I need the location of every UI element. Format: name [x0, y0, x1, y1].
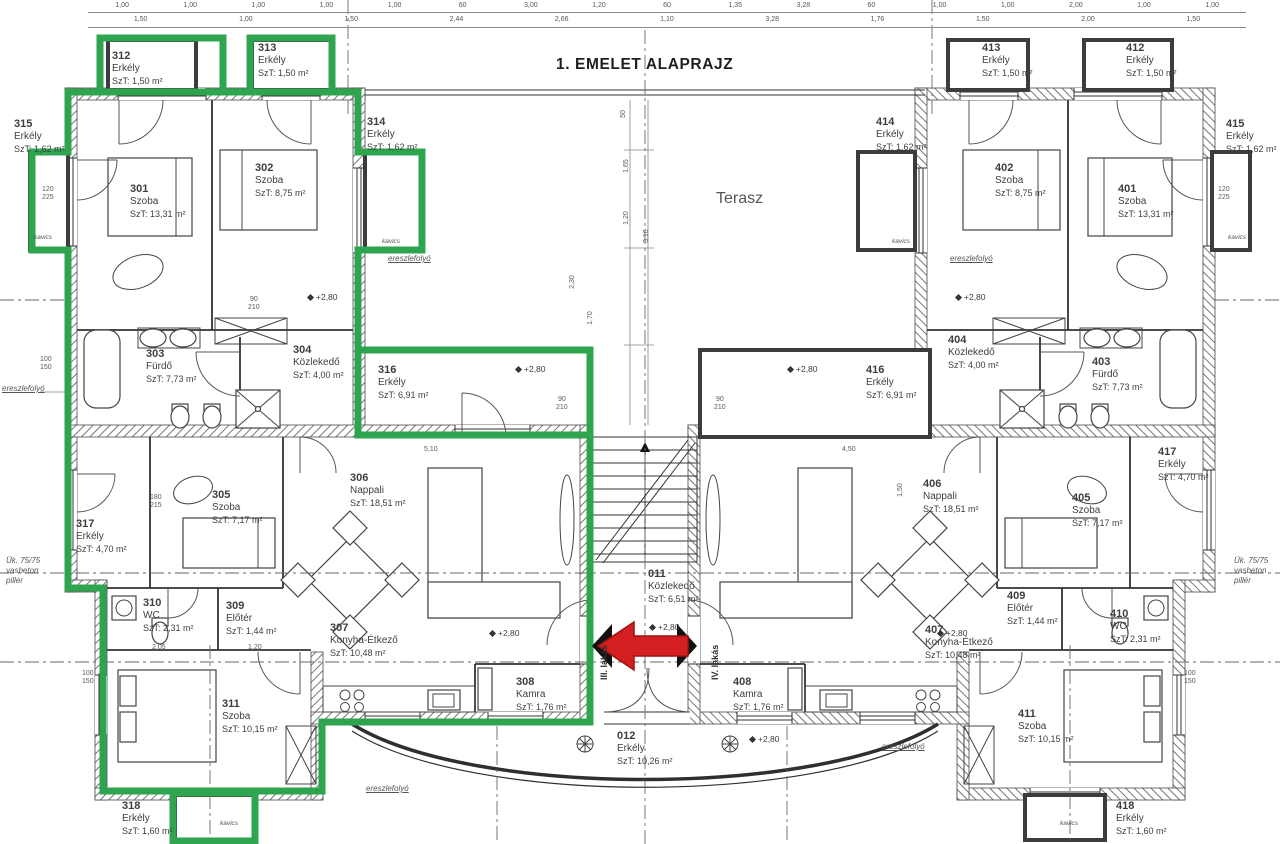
room-label: 415 Erkély SzT: 1,62 m²: [1226, 118, 1277, 155]
room-number: 311: [222, 698, 278, 711]
room-area: SzT: 1,50 m²: [258, 68, 309, 79]
room-name: WC: [143, 610, 194, 622]
room-name: Erkély: [1226, 131, 1277, 143]
room-number: 308: [516, 676, 567, 689]
dimension-value: 60: [633, 2, 701, 9]
room-number: 306: [350, 472, 406, 485]
room-label: 305 Szoba SzT: 7,17 m²: [212, 489, 263, 526]
room-number: 403: [1092, 356, 1143, 369]
annotation: Ük. 75/75 vasbeton pillér: [6, 556, 40, 586]
room-label: 313 Erkély SzT: 1,50 m²: [258, 42, 309, 79]
room-number: 317: [76, 518, 127, 531]
dimension-mark: 50: [620, 110, 628, 118]
room-name: Szoba: [1072, 505, 1123, 517]
dimension-value: 1,20: [565, 2, 633, 9]
dimension-value: 1,00: [974, 2, 1042, 9]
room-area: SzT: 4,70 m²: [76, 544, 127, 555]
room-name: Kamra: [516, 689, 567, 701]
room-number: 316: [378, 364, 429, 377]
room-number: 310: [143, 597, 194, 610]
dimension-value: 1,00: [224, 2, 292, 9]
room-area: SzT: 1,62 m²: [1226, 144, 1277, 155]
dimension-mark: 1,70: [587, 311, 595, 325]
room-area: SzT: 1,44 m²: [226, 626, 277, 637]
annotation: kavics: [1228, 234, 1246, 242]
dimension-mark: 5,10: [424, 446, 438, 454]
room-area: SzT: 6,51 m²: [648, 594, 699, 605]
room-label: 314 Erkély SzT: 1,62 m²: [367, 116, 418, 153]
room-area: SzT: 13,31 m²: [1118, 209, 1174, 220]
room-label: 316 Erkély SzT: 6,91 m²: [378, 364, 429, 401]
room-name: Szoba: [222, 711, 278, 723]
room-name: Előtér: [226, 613, 277, 625]
room-label: 403 Fürdő SzT: 7,73 m²: [1092, 356, 1143, 393]
dimension-value: 1,00: [361, 2, 429, 9]
dimension-value: 1,00: [1110, 2, 1178, 9]
room-area: SzT: 10,48 m²: [330, 648, 398, 659]
room-area: SzT: 7,17 m²: [1072, 518, 1123, 529]
dimension-value: 2,44: [404, 16, 509, 23]
room-name: Erkély: [1158, 459, 1209, 471]
room-label: 418 Erkély SzT: 1,60 m²: [1116, 800, 1167, 837]
room-number: 402: [995, 162, 1046, 175]
room-area: SzT: 7,17 m²: [212, 515, 263, 526]
room-area: SzT: 4,00 m²: [948, 360, 999, 371]
room-area: SzT: 4,70 m²: [1158, 472, 1209, 483]
room-number: 307: [330, 622, 398, 635]
dimension-value: 1,10: [614, 16, 719, 23]
room-label: 315 Erkély SzT: 1,62 m²: [14, 118, 65, 155]
room-name: Közlekedő: [948, 347, 999, 359]
room-area: SzT: 1,50 m²: [982, 68, 1033, 79]
room-label: 308 Kamra SzT: 1,76 m²: [516, 676, 567, 713]
annotation: kavics: [34, 234, 52, 242]
annotation: ereszlefolyó: [2, 384, 45, 394]
room-label: 409 Előtér SzT: 1,44 m²: [1007, 590, 1058, 627]
room-label: 412 Erkély SzT: 1,50 m²: [1126, 42, 1177, 79]
room-label: 303 Fürdő SzT: 7,73 m²: [146, 348, 197, 385]
room-label: 405 Szoba SzT: 7,17 m²: [1072, 492, 1123, 529]
apartment-unit-geometry: [30, 0, 592, 844]
room-label: 011 Közlekedő SzT: 6,51 m²: [648, 568, 699, 605]
annotation: kavics: [382, 238, 400, 246]
room-area: SzT: 1,62 m²: [367, 142, 418, 153]
room-area: SzT: 10,48 m²: [925, 650, 993, 661]
room-number: 313: [258, 42, 309, 55]
room-label: 404 Közlekedő SzT: 4,00 m²: [948, 334, 999, 371]
room-number: 012: [617, 730, 673, 743]
room-number: 409: [1007, 590, 1058, 603]
room-area: SzT: 2,31 m²: [1110, 634, 1161, 645]
room-area: SzT: 1,60 m²: [1116, 826, 1167, 837]
dimension-value: 1,50: [299, 16, 404, 23]
dimension-mark: 2,05: [152, 644, 166, 652]
room-area: SzT: 6,91 m²: [378, 390, 429, 401]
elevation-marker: +2,80: [490, 628, 520, 638]
room-name: Erkély: [378, 377, 429, 389]
dimension-row-1: 1,001,001,001,001,00603,001,20601,353,28…: [88, 2, 1246, 9]
dimension-value: 1,00: [1178, 2, 1246, 9]
dimension-value: 1,00: [292, 2, 360, 9]
room-name: Erkély: [982, 55, 1033, 67]
dimension-mark: 100 150: [82, 670, 94, 686]
dimension-mark: 1,65: [623, 159, 631, 173]
dimension-value: 3,28: [769, 2, 837, 9]
room-area: SzT: 10,15 m²: [222, 724, 278, 735]
room-name: Erkély: [122, 813, 173, 825]
room-area: SzT: 1,76 m²: [516, 702, 567, 713]
room-name: Erkély: [14, 131, 65, 143]
unit-right-label: IV. lakás: [710, 645, 720, 680]
room-number: 404: [948, 334, 999, 347]
room-name: Erkély: [76, 531, 127, 543]
room-area: SzT: 2,31 m²: [143, 623, 194, 634]
room-label: 302 Szoba SzT: 8,75 m²: [255, 162, 306, 199]
room-number: 314: [367, 116, 418, 129]
room-area: SzT: 1,76 m²: [733, 702, 784, 713]
dimension-mark: 100 150: [1184, 670, 1196, 686]
floor-plan: .wall{fill:url(#hatch);stroke:#4a4a4a;st…: [0, 0, 1280, 844]
annotation: kavics: [892, 238, 910, 246]
room-number: 401: [1118, 183, 1174, 196]
room-name: Fürdő: [146, 361, 197, 373]
dimension-value: 1,50: [88, 16, 193, 23]
dimension-value: 1,35: [701, 2, 769, 9]
room-number: 416: [866, 364, 917, 377]
annotation: ereszlefolyó: [388, 254, 431, 264]
room-number: 411: [1018, 708, 1074, 721]
room-area: SzT: 8,75 m²: [255, 188, 306, 199]
room-area: SzT: 1,62 m²: [14, 144, 65, 155]
room-label: 402 Szoba SzT: 8,75 m²: [995, 162, 1046, 199]
room-area: SzT: 1,60 m²: [122, 826, 173, 837]
room-number: 406: [923, 478, 979, 491]
room-label: 304 Közlekedő SzT: 4,00 m²: [293, 344, 344, 381]
room-name: Közlekedő: [648, 581, 699, 593]
dimension-mark: 90 210: [714, 396, 726, 412]
annotation: ereszlefolyó: [366, 784, 409, 794]
room-number: 312: [112, 50, 163, 63]
room-label: 408 Kamra SzT: 1,76 m²: [733, 676, 784, 713]
dimension-mark: 120 225: [42, 186, 54, 202]
room-number: 418: [1116, 800, 1167, 813]
annotation: ereszlefolyó: [950, 254, 993, 264]
room-name: Fürdő: [1092, 369, 1143, 381]
room-name: Kamra: [733, 689, 784, 701]
dimension-value: 1,00: [88, 2, 156, 9]
room-number: 303: [146, 348, 197, 361]
room-number: 315: [14, 118, 65, 131]
room-number: 410: [1110, 608, 1161, 621]
dimension-mark: 120 225: [1218, 186, 1230, 202]
room-name: Erkély: [1116, 813, 1167, 825]
room-number: 304: [293, 344, 344, 357]
room-name: Nappali: [923, 491, 979, 503]
elevation-marker: +2,80: [308, 292, 338, 302]
elevation-marker: +2,80: [516, 364, 546, 374]
room-name: Erkély: [866, 377, 917, 389]
room-area: SzT: 6,91 m²: [866, 390, 917, 401]
dimension-mark: 3,10: [643, 229, 651, 243]
room-area: SzT: 4,00 m²: [293, 370, 344, 381]
room-name: Nappali: [350, 485, 406, 497]
room-label: 413 Erkély SzT: 1,50 m²: [982, 42, 1033, 79]
room-label: 312 Erkély SzT: 1,50 m²: [112, 50, 163, 87]
room-area: SzT: 18,51 m²: [923, 504, 979, 515]
room-name: Konyha-Étkező: [925, 637, 993, 649]
room-name: Szoba: [1118, 196, 1174, 208]
room-label: 416 Erkély SzT: 6,91 m²: [866, 364, 917, 401]
room-name: Szoba: [130, 196, 186, 208]
dimension-line-top: [88, 12, 1246, 13]
room-label: 307 Konyha-Étkező SzT: 10,48 m²: [330, 622, 398, 659]
dimension-mark: 100 150: [40, 356, 52, 372]
room-area: SzT: 1,62 m²: [876, 142, 927, 153]
room-number: 305: [212, 489, 263, 502]
room-name: Erkély: [617, 743, 673, 755]
page-title: 1. EMELET ALAPRAJZ: [556, 56, 733, 74]
room-label: 401 Szoba SzT: 13,31 m²: [1118, 183, 1174, 220]
room-number: 415: [1226, 118, 1277, 131]
room-name: Erkély: [258, 55, 309, 67]
dimension-mark: 1,50: [897, 483, 905, 497]
room-label: 306 Nappali SzT: 18,51 m²: [350, 472, 406, 509]
room-number: 301: [130, 183, 186, 196]
room-area: SzT: 1,50 m²: [112, 76, 163, 87]
dimension-value: 2,00: [1035, 16, 1140, 23]
room-name: Erkély: [112, 63, 163, 75]
dimension-value: 1,00: [156, 2, 224, 9]
room-number: 309: [226, 600, 277, 613]
room-label: 311 Szoba SzT: 10,15 m²: [222, 698, 278, 735]
room-number: 414: [876, 116, 927, 129]
elevation-marker: +2,80: [750, 734, 780, 744]
room-name: WC: [1110, 621, 1161, 633]
dimension-row-2: 1,501,001,502,442,661,103,281,761,502,00…: [88, 16, 1246, 23]
room-name: Erkély: [876, 129, 927, 141]
room-label: 417 Erkély SzT: 4,70 m²: [1158, 446, 1209, 483]
dimension-value: 60: [837, 2, 905, 9]
annotation: kavics: [1060, 820, 1078, 828]
room-area: SzT: 7,73 m²: [1092, 382, 1143, 393]
elevation-marker: +2,80: [650, 622, 680, 632]
room-area: SzT: 10,15 m²: [1018, 734, 1074, 745]
room-name: Előtér: [1007, 603, 1058, 615]
room-name: Erkély: [1126, 55, 1177, 67]
room-area: SzT: 1,50 m²: [1126, 68, 1177, 79]
room-label: 309 Előtér SzT: 1,44 m²: [226, 600, 277, 637]
room-name: Konyha-Étkező: [330, 635, 398, 647]
room-name: Szoba: [255, 175, 306, 187]
dimension-value: 60: [429, 2, 497, 9]
dimension-mark: 90 210: [556, 396, 568, 412]
room-area: SzT: 18,51 m²: [350, 498, 406, 509]
dimension-value: 3,00: [497, 2, 565, 9]
room-number: 302: [255, 162, 306, 175]
annotation: ereszlefolyó: [882, 742, 925, 752]
room-label: 406 Nappali SzT: 18,51 m²: [923, 478, 979, 515]
room-label: 411 Szoba SzT: 10,15 m²: [1018, 708, 1074, 745]
elevation-marker: +2,80: [938, 628, 968, 638]
elevation-marker: +2,80: [956, 292, 986, 302]
room-area: SzT: 7,73 m²: [146, 374, 197, 385]
annotation: kavics: [220, 820, 238, 828]
room-number: 417: [1158, 446, 1209, 459]
room-name: Közlekedő: [293, 357, 344, 369]
unit-left-label: III. lakás: [599, 645, 609, 680]
dimension-value: 1,76: [825, 16, 930, 23]
dimension-value: 1,50: [1141, 16, 1246, 23]
terrace-label: Terasz: [716, 190, 763, 208]
room-name: Szoba: [995, 175, 1046, 187]
dimension-value: 2,66: [509, 16, 614, 23]
room-area: SzT: 1,44 m²: [1007, 616, 1058, 627]
room-number: 318: [122, 800, 173, 813]
room-label: 414 Erkély SzT: 1,62 m²: [876, 116, 927, 153]
room-number: 412: [1126, 42, 1177, 55]
dimension-value: 2,00: [1042, 2, 1110, 9]
room-name: Szoba: [1018, 721, 1074, 733]
dimension-value: 3,28: [720, 16, 825, 23]
room-number: 405: [1072, 492, 1123, 505]
dimension-mark: 1,20: [623, 211, 631, 225]
room-number: 408: [733, 676, 784, 689]
room-area: SzT: 13,31 m²: [130, 209, 186, 220]
elevation-marker: +2,80: [788, 364, 818, 374]
room-label: 012 Erkély SzT: 10,26 m²: [617, 730, 673, 767]
dimension-mark: 2,30: [569, 275, 577, 289]
annotation: Ük. 75/75 vasbeton pillér: [1234, 556, 1268, 586]
room-number: 413: [982, 42, 1033, 55]
room-label: 318 Erkély SzT: 1,60 m²: [122, 800, 173, 837]
dimension-mark: 4,50: [842, 446, 856, 454]
room-area: SzT: 8,75 m²: [995, 188, 1046, 199]
dimension-mark: 1,20: [248, 644, 262, 652]
dimension-mark: 180 215: [150, 494, 162, 510]
room-label: 310 WC SzT: 2,31 m²: [143, 597, 194, 634]
dimension-value: 1,00: [193, 16, 298, 23]
dimension-value: 1,50: [930, 16, 1035, 23]
dimension-value: 1,00: [906, 2, 974, 9]
room-area: SzT: 10,26 m²: [617, 756, 673, 767]
room-number: 011: [648, 568, 699, 581]
room-name: Szoba: [212, 502, 263, 514]
room-label: 317 Erkély SzT: 4,70 m²: [76, 518, 127, 555]
room-label: 301 Szoba SzT: 13,31 m²: [130, 183, 186, 220]
floor-plan-svg: .wall{fill:url(#hatch);stroke:#4a4a4a;st…: [0, 0, 1280, 844]
dimension-line-bottom: [88, 27, 1246, 28]
room-label: 410 WC SzT: 2,31 m²: [1110, 608, 1161, 645]
room-name: Erkély: [367, 129, 418, 141]
dimension-mark: 90 210: [248, 296, 260, 312]
